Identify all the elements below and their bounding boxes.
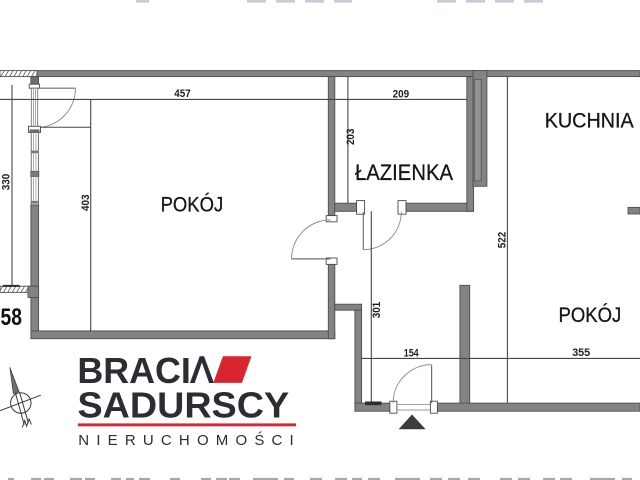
svg-text:355: 355 xyxy=(572,347,590,359)
svg-text:KUCHNIA: KUCHNIA xyxy=(545,108,635,132)
svg-text:NIERUCHOMOŚCI: NIERUCHOMOŚCI xyxy=(78,431,293,449)
svg-text:522: 522 xyxy=(496,232,508,249)
svg-text:154: 154 xyxy=(404,348,420,360)
svg-text:403: 403 xyxy=(80,194,92,211)
svg-text:ŁAZIENKA: ŁAZIENKA xyxy=(355,160,453,185)
svg-text:457: 457 xyxy=(174,88,191,100)
svg-text:SADURSCY: SADURSCY xyxy=(78,385,290,426)
svg-text:POKÓJ: POKÓJ xyxy=(161,194,224,217)
svg-text:330: 330 xyxy=(1,174,13,191)
svg-text:209: 209 xyxy=(393,88,410,100)
svg-text:58: 58 xyxy=(1,304,23,331)
svg-text:203: 203 xyxy=(345,129,357,146)
svg-text:301: 301 xyxy=(371,302,383,319)
svg-text:POKÓJ: POKÓJ xyxy=(559,304,622,327)
